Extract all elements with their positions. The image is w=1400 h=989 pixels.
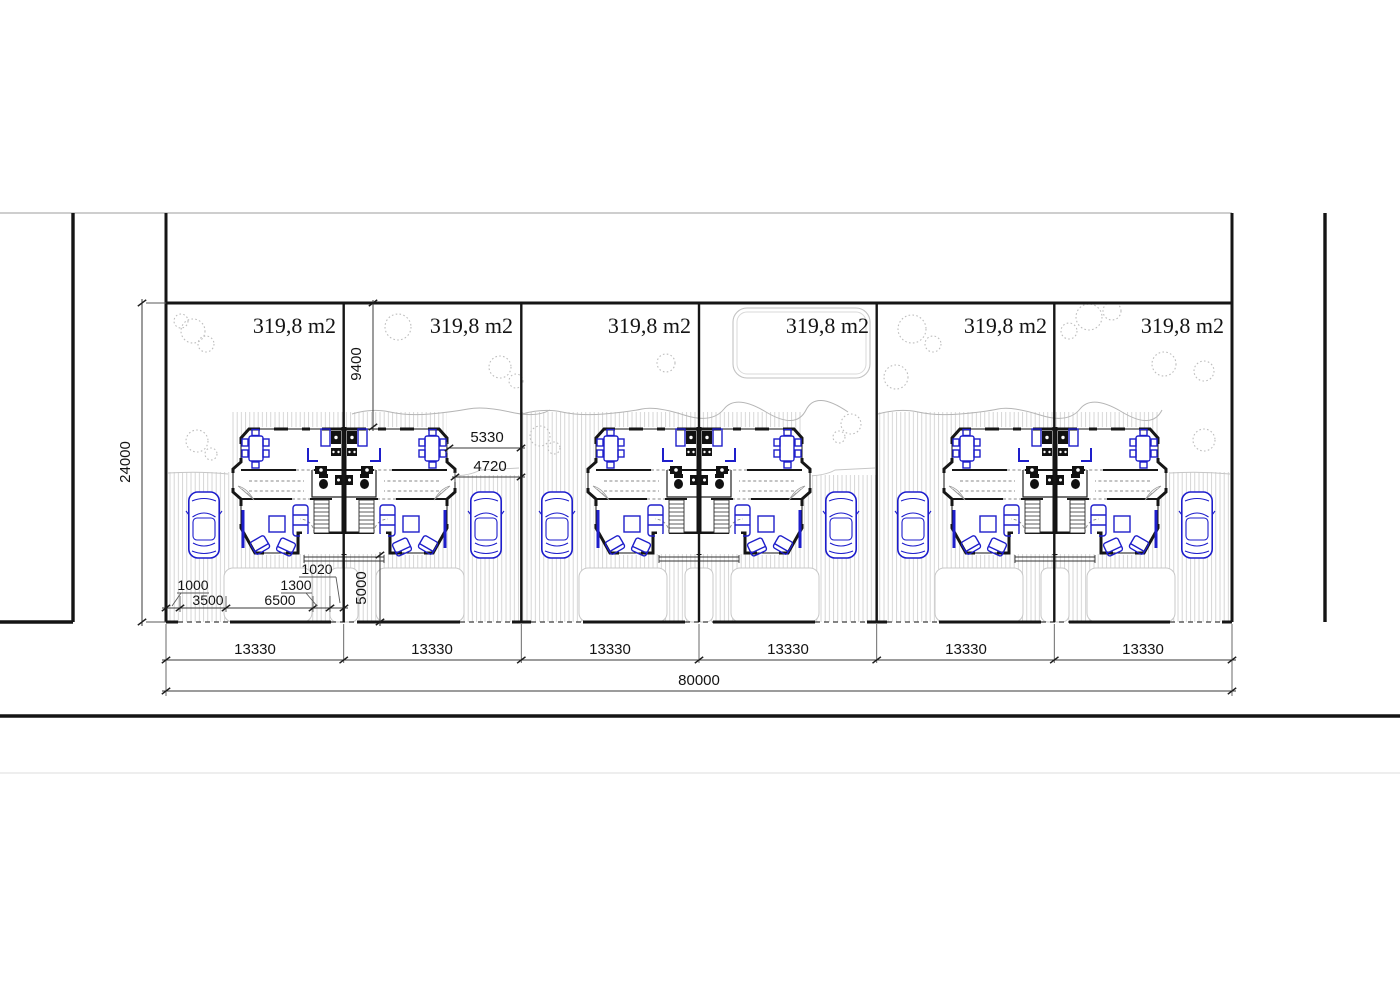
- lot-width-dim: 13330: [945, 641, 987, 658]
- lot-width-dim: 13330: [411, 641, 453, 658]
- dim-side-upper: 5330: [470, 429, 503, 446]
- dim-driveway: 3500: [192, 592, 223, 608]
- lot-area-label: 319,8 m2: [786, 313, 869, 338]
- lot-width-dim: 13330: [1122, 641, 1164, 658]
- dim-gate: 1000: [177, 577, 208, 593]
- site-plan-canvas: 24000 9400 5330 4720 5000 1000 3500 6500…: [0, 0, 1400, 989]
- lot-area-label: 319,8 m2: [964, 313, 1047, 338]
- dim-total-width: 80000: [678, 672, 720, 689]
- lot-area-label: 319,8 m2: [253, 313, 336, 338]
- lot-width-dim: 13330: [234, 641, 276, 658]
- dim-site-depth: 24000: [117, 441, 134, 483]
- lot-width-dim: 13330: [589, 641, 631, 658]
- dim-front-pad: 6500: [264, 592, 295, 608]
- dim-side-lower: 4720: [473, 458, 506, 475]
- lot-width-dim: 13330: [767, 641, 809, 658]
- dim-front-yard: 5000: [353, 571, 370, 604]
- dim-entry-step: 1020: [301, 561, 332, 577]
- lot-area-label: 319,8 m2: [1141, 313, 1224, 338]
- dim-walkway: 1300: [280, 577, 311, 593]
- site-plan-page: 24000 9400 5330 4720 5000 1000 3500 6500…: [0, 0, 1400, 989]
- lot-area-label: 319,8 m2: [430, 313, 513, 338]
- dim-rear-garden: 9400: [348, 347, 365, 380]
- lot-area-label: 319,8 m2: [608, 313, 691, 338]
